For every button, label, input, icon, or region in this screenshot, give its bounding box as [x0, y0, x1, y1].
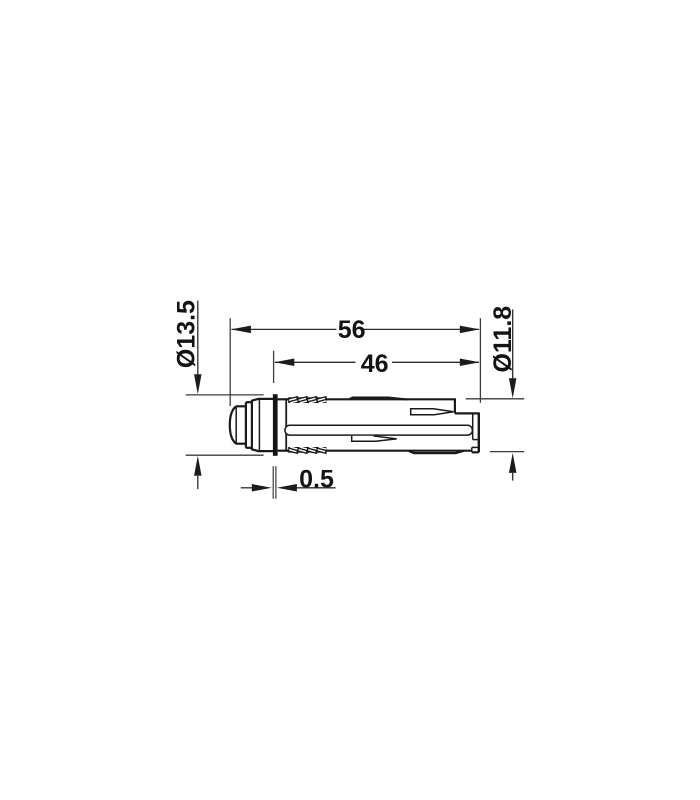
svg-text:0.5: 0.5 — [299, 465, 334, 493]
svg-text:Ø13.5: Ø13.5 — [172, 300, 200, 368]
svg-text:56: 56 — [338, 316, 366, 344]
svg-text:Ø11.8: Ø11.8 — [489, 306, 517, 373]
svg-text:46: 46 — [361, 350, 389, 378]
